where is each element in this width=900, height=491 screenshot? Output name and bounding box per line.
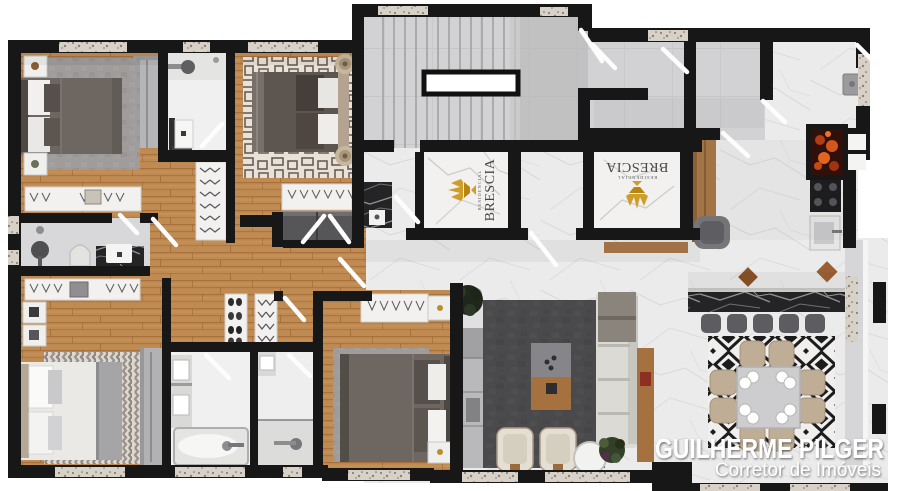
svg-text:Corretor de Imóveis: Corretor de Imóveis	[715, 460, 881, 481]
svg-text:BRESCIA: BRESCIA	[483, 158, 498, 221]
svg-text:RESIDENCIAL: RESIDENCIAL	[477, 170, 482, 211]
svg-text:BRESCIA: BRESCIA	[605, 159, 668, 174]
svg-text:RESIDENCIAL: RESIDENCIAL	[617, 175, 658, 180]
